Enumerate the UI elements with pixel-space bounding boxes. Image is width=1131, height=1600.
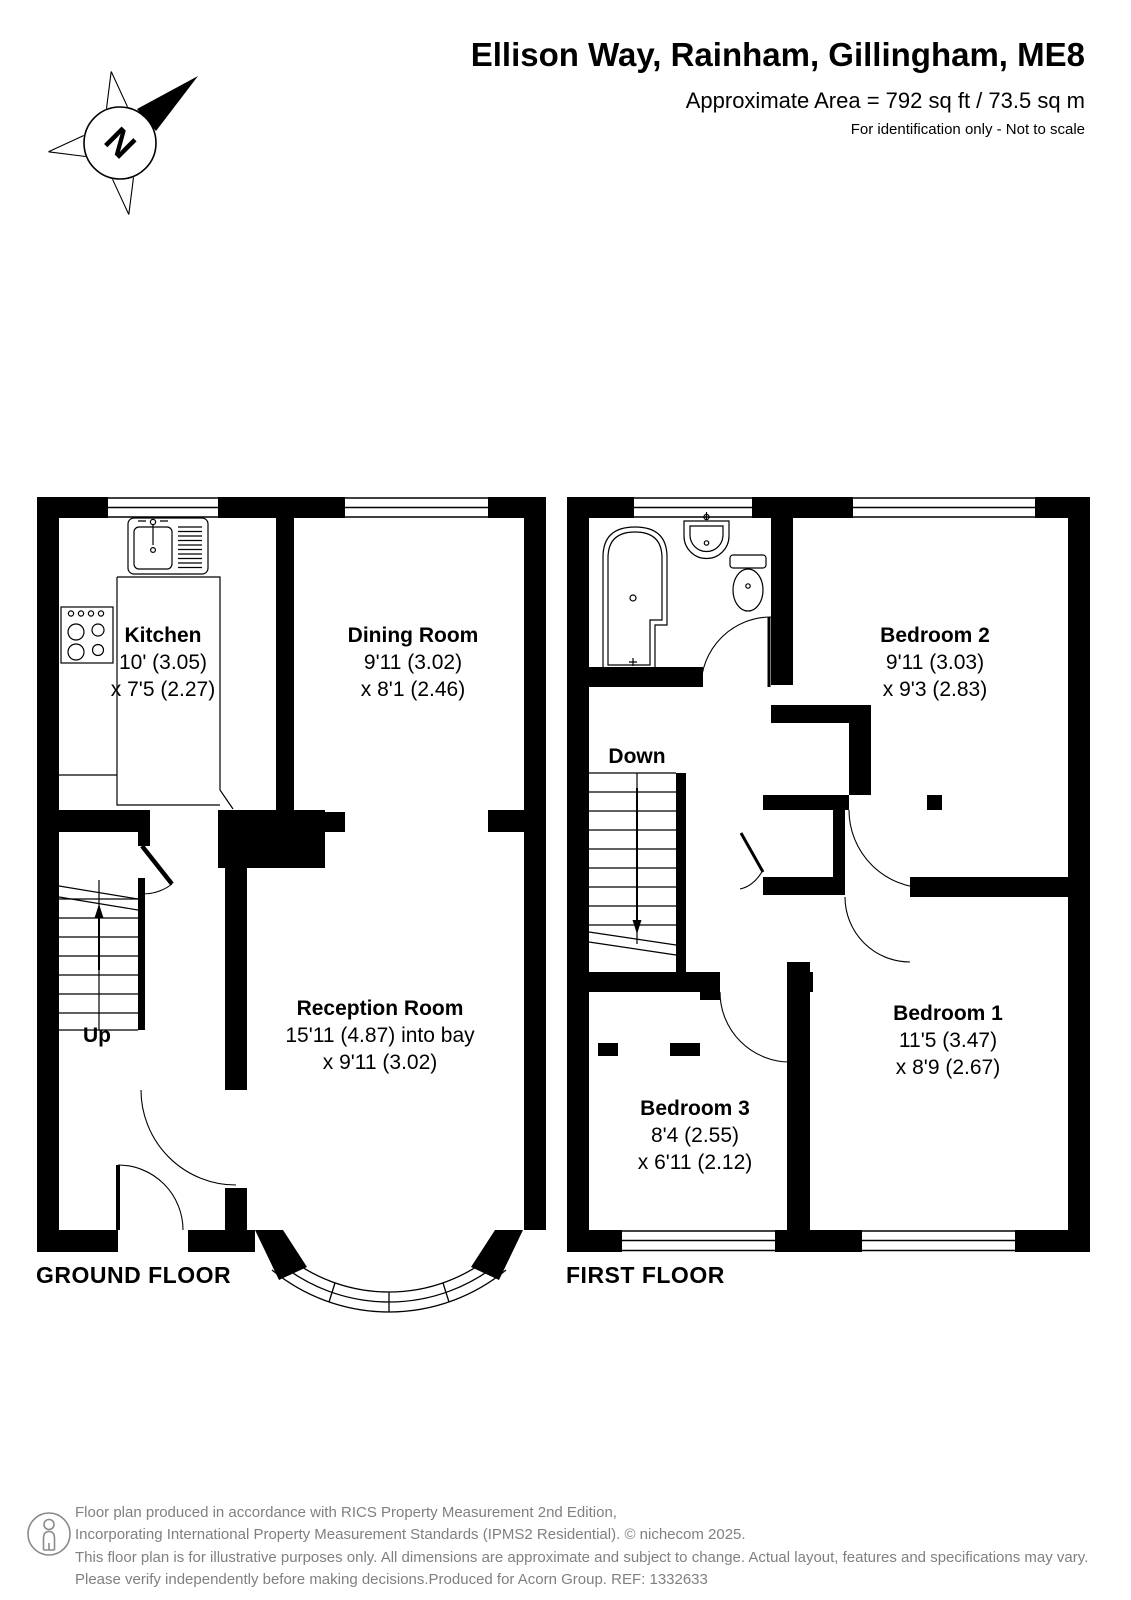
room-label-dining: Dining Room 9'11 (3.02) x 8'1 (2.46) [348,622,479,703]
bedroom2-door-arc [849,810,927,888]
room-label-bedroom2: Bedroom 2 9'11 (3.03) x 9'3 (2.83) [880,622,990,703]
hall-door-leaf [142,846,172,884]
bay-wall-right [471,1230,523,1280]
front-door-arc [118,1165,183,1230]
ground-floor-plan [37,497,546,1312]
kitchen-hob [61,607,113,663]
first-floor-title: FIRST FLOOR [566,1262,725,1289]
cupboard-door-arc [740,870,763,889]
floorplan-page: N [0,0,1131,1600]
disclaimer-line-4: Please verify independently before makin… [75,1569,1088,1591]
down-arrow [633,920,642,934]
room-label-bedroom1: Bedroom 1 11'5 (3.47) x 8'9 (2.67) [893,1000,1003,1081]
up-arrow [95,904,104,918]
stairs-down [589,773,676,955]
bedroom3-door-arc [720,992,790,1062]
stairs-down-label: Down [608,745,665,769]
ground-floor-doors [118,846,236,1230]
bay-wall-left [255,1230,307,1280]
cupboard-door-leaf [741,833,763,872]
disclaimer-line-1: Floor plan produced in accordance with R… [75,1502,1088,1524]
compass-icon: N [49,72,199,215]
bathroom-door-arc [701,617,771,687]
room-label-kitchen: Kitchen 10' (3.05) x 7'5 (2.27) [111,622,215,703]
disclaimer: Floor plan produced in accordance with R… [75,1502,1088,1592]
disclaimer-line-3: This floor plan is for illustrative purp… [75,1547,1088,1569]
room-label-bedroom3: Bedroom 3 8'4 (2.55) x 6'11 (2.12) [638,1095,753,1176]
bedroom1-door-arc [845,897,910,962]
floorplan-drawing: N [0,0,1131,1600]
person-icon [28,1513,70,1555]
sink [684,512,729,559]
area-subtitle: Approximate Area = 792 sq ft / 73.5 sq m [686,88,1085,114]
reception-door-arc [141,1090,236,1185]
toilet [730,555,766,611]
page-title: Ellison Way, Rainham, Gillingham, ME8 [471,36,1085,74]
hall-door-arc [142,884,172,894]
disclaimer-line-2: Incorporating International Property Mea… [75,1524,1088,1546]
room-label-reception: Reception Room 15'11 (4.87) into bay x 9… [285,995,474,1076]
stairs-up-label: Up [83,1024,111,1048]
bay-window [272,1254,506,1312]
scale-note: For identification only - Not to scale [851,121,1085,138]
ground-floor-title: GROUND FLOOR [36,1262,231,1289]
stairs-up [59,880,138,1030]
bathtub [603,527,667,670]
kitchen-sink [128,518,208,574]
